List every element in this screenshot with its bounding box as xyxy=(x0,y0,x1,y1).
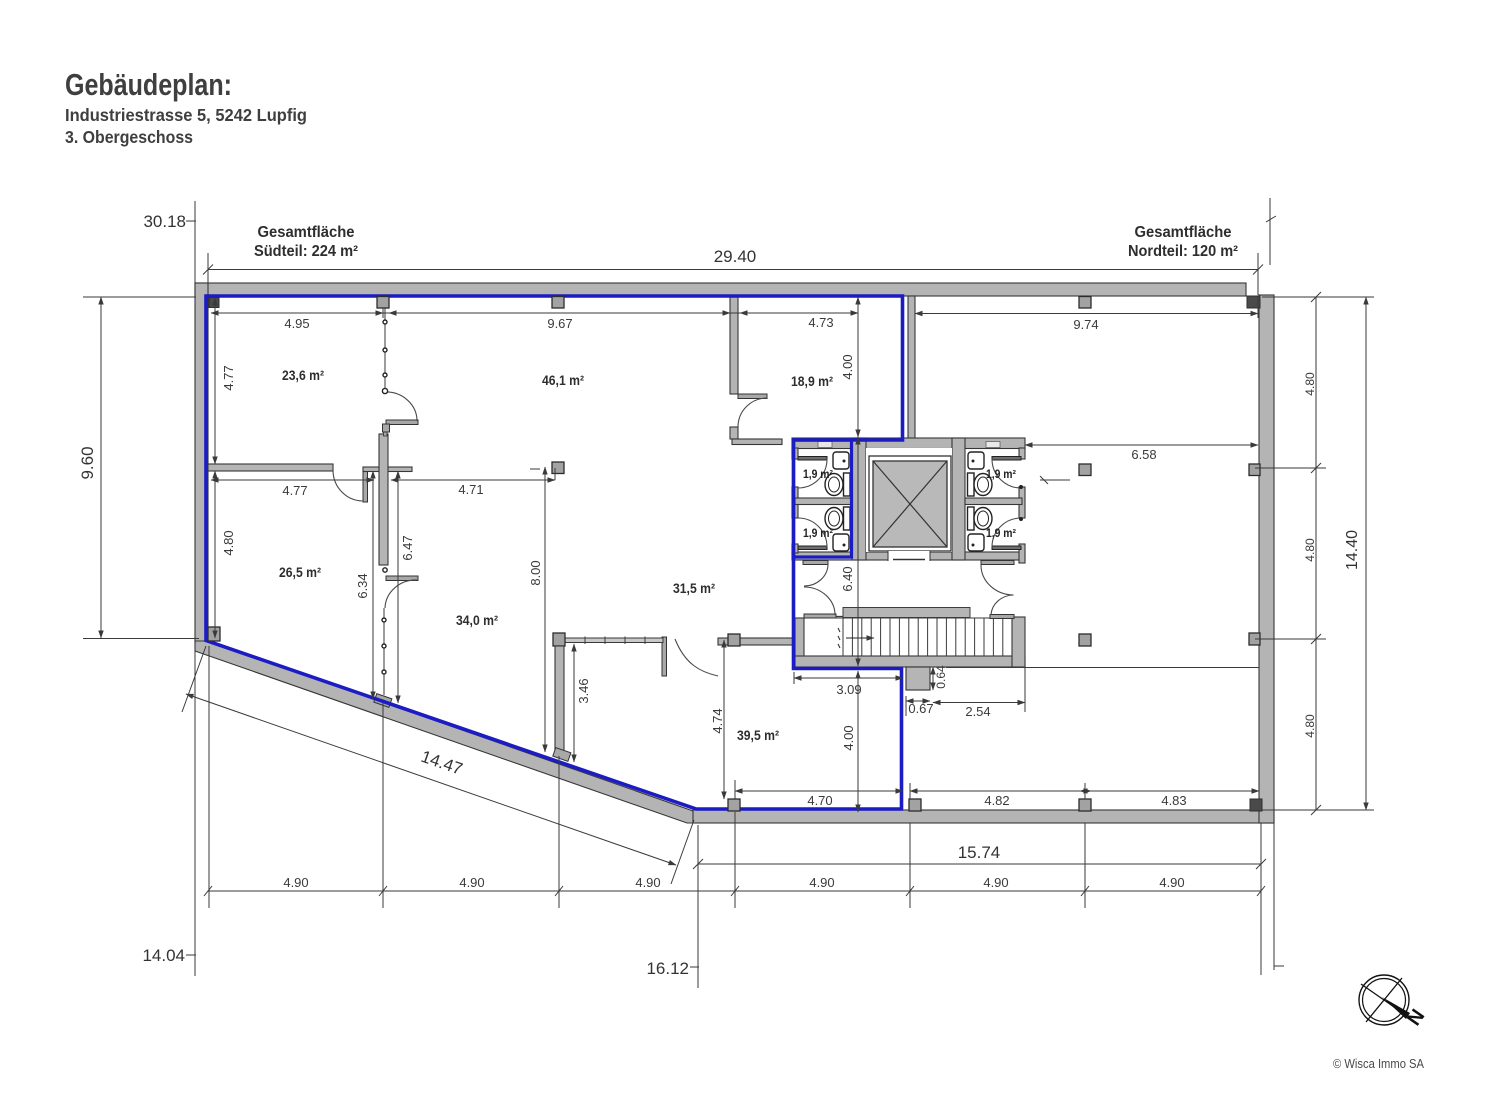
svg-text:46,1 m²: 46,1 m² xyxy=(542,372,584,388)
svg-text:4.90: 4.90 xyxy=(1159,875,1184,890)
svg-text:4.95: 4.95 xyxy=(284,316,309,331)
svg-text:Industriestrasse 5, 5242 Lupfi: Industriestrasse 5, 5242 Lupfig xyxy=(65,105,307,125)
svg-text:34,0 m²: 34,0 m² xyxy=(456,612,498,628)
svg-text:4.71: 4.71 xyxy=(458,482,483,497)
svg-text:18,9 m²: 18,9 m² xyxy=(791,373,833,389)
svg-text:1,9 m²: 1,9 m² xyxy=(986,469,1016,481)
svg-text:4.77: 4.77 xyxy=(282,483,307,498)
svg-text:16.12: 16.12 xyxy=(646,959,689,978)
svg-text:4.00: 4.00 xyxy=(841,725,856,750)
svg-text:© Wisca Immo SA: © Wisca Immo SA xyxy=(1333,1056,1424,1071)
svg-text:4.80: 4.80 xyxy=(1303,372,1317,396)
svg-text:4.90: 4.90 xyxy=(809,875,834,890)
svg-text:9.67: 9.67 xyxy=(547,316,572,331)
svg-text:14.04: 14.04 xyxy=(142,946,185,965)
svg-text:6.47: 6.47 xyxy=(400,535,415,560)
svg-text:0.67: 0.67 xyxy=(908,701,933,716)
svg-text:Nordteil: 120 m²: Nordteil: 120 m² xyxy=(1128,243,1238,260)
svg-text:4.90: 4.90 xyxy=(635,875,660,890)
svg-text:Gesamtfläche: Gesamtfläche xyxy=(258,224,355,241)
svg-text:4.82: 4.82 xyxy=(984,793,1009,808)
svg-text:4.90: 4.90 xyxy=(983,875,1008,890)
svg-text:2.54: 2.54 xyxy=(965,704,990,719)
svg-text:4.00: 4.00 xyxy=(840,354,855,379)
svg-text:3.09: 3.09 xyxy=(836,682,861,697)
svg-text:39,5 m²: 39,5 m² xyxy=(737,727,779,743)
svg-text:6.58: 6.58 xyxy=(1131,447,1156,462)
svg-text:4.77: 4.77 xyxy=(221,365,236,390)
svg-text:9.60: 9.60 xyxy=(78,446,97,479)
svg-text:9.74: 9.74 xyxy=(1073,317,1098,332)
svg-text:3. Obergeschoss: 3. Obergeschoss xyxy=(65,127,193,147)
svg-text:Gebäudeplan:: Gebäudeplan: xyxy=(65,67,232,102)
svg-text:1,9 m²: 1,9 m² xyxy=(803,528,833,540)
svg-text:4.90: 4.90 xyxy=(283,875,308,890)
svg-text:1,9 m²: 1,9 m² xyxy=(803,469,833,481)
svg-text:23,6 m²: 23,6 m² xyxy=(282,367,324,383)
svg-text:26,5 m²: 26,5 m² xyxy=(279,564,321,580)
svg-text:29.40: 29.40 xyxy=(714,247,757,266)
svg-text:6.34: 6.34 xyxy=(355,573,370,598)
svg-text:3.46: 3.46 xyxy=(576,678,591,703)
svg-text:14.40: 14.40 xyxy=(1344,530,1361,570)
svg-text:4.90: 4.90 xyxy=(459,875,484,890)
svg-text:4.80: 4.80 xyxy=(221,530,236,555)
svg-text:4.74: 4.74 xyxy=(710,708,725,733)
svg-text:1,9 m²: 1,9 m² xyxy=(986,528,1016,540)
svg-text:Gesamtfläche: Gesamtfläche xyxy=(1135,224,1232,241)
svg-text:4.70: 4.70 xyxy=(807,793,832,808)
svg-text:0.64: 0.64 xyxy=(934,665,948,689)
svg-text:4.73: 4.73 xyxy=(808,315,833,330)
svg-text:8.00: 8.00 xyxy=(528,560,543,585)
svg-text:6.40: 6.40 xyxy=(840,566,855,591)
svg-text:31,5 m²: 31,5 m² xyxy=(673,580,715,596)
svg-text:15.74: 15.74 xyxy=(958,843,1001,862)
svg-text:30.18: 30.18 xyxy=(143,212,186,231)
svg-text:4.80: 4.80 xyxy=(1303,538,1317,562)
svg-text:Südteil: 224 m²: Südteil: 224 m² xyxy=(254,243,358,260)
svg-text:4.83: 4.83 xyxy=(1161,793,1186,808)
svg-text:4.80: 4.80 xyxy=(1303,714,1317,738)
